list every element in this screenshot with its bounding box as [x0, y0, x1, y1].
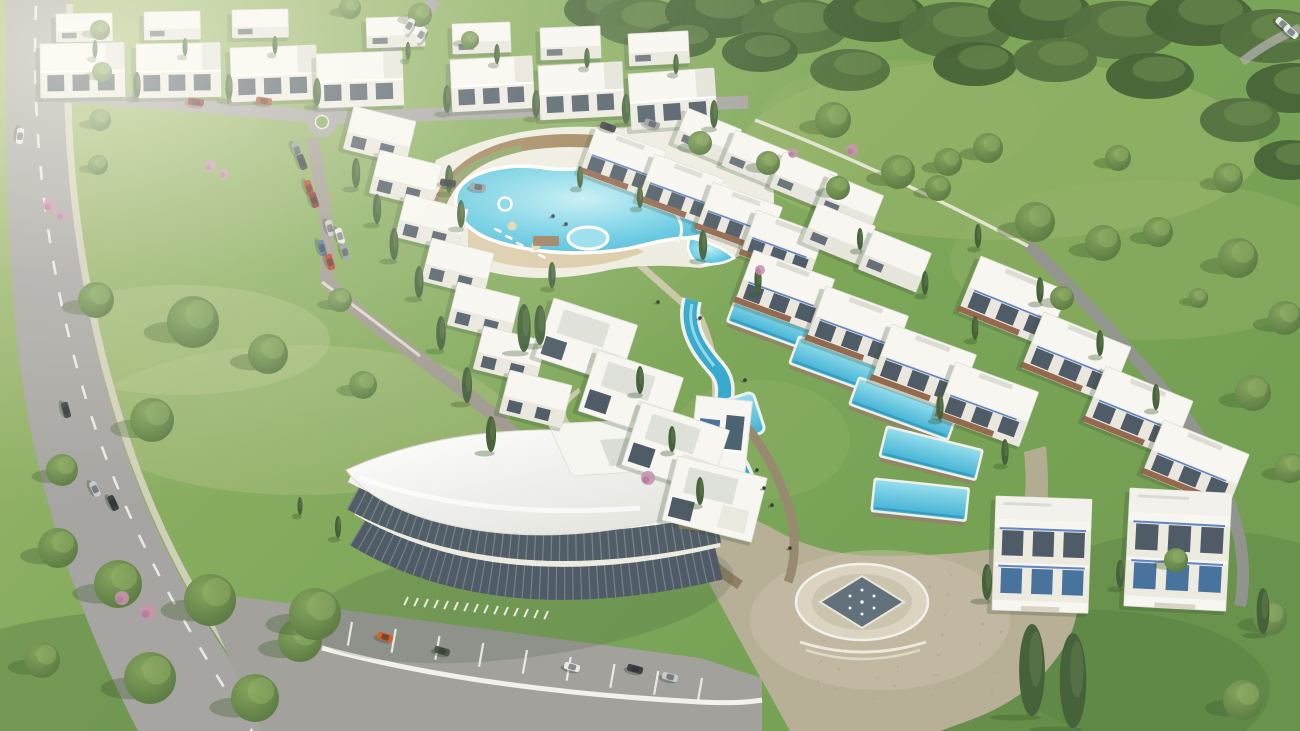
aerial-render-viewport [0, 0, 1300, 731]
resort-aerial-rendering [0, 0, 1300, 731]
sun-haze-overlay [0, 0, 1300, 731]
